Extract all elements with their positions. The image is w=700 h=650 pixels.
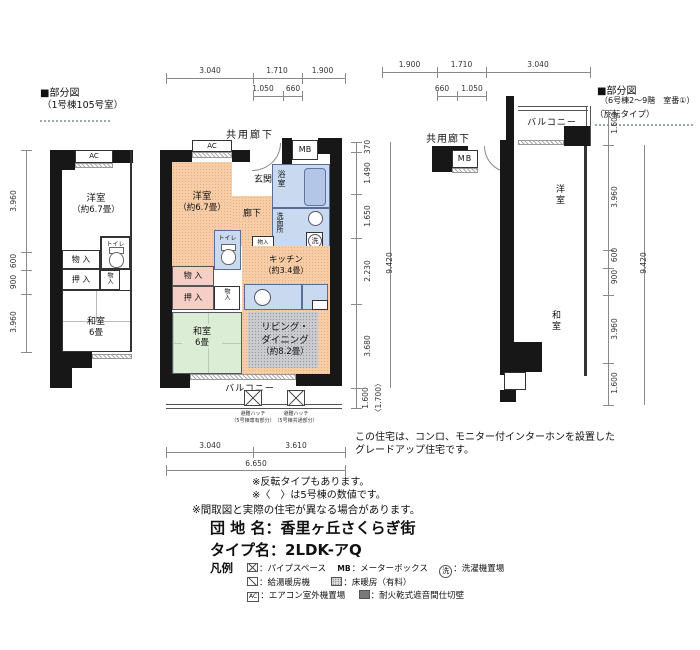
center-bath-label: 浴室 bbox=[276, 170, 287, 188]
center-monoire-label: 物 入 bbox=[172, 270, 214, 281]
center-rdim-2230: 2.230 bbox=[363, 253, 373, 289]
tick bbox=[351, 194, 362, 195]
right-dim-line bbox=[608, 110, 609, 405]
center-bottom-dim-line1 bbox=[166, 452, 346, 453]
tick bbox=[345, 447, 346, 458]
right-wall bbox=[564, 126, 590, 146]
right-outer-border bbox=[584, 146, 587, 376]
legend-washer-label: ：洗濯機置場 bbox=[453, 564, 504, 574]
left-plan-dim-line bbox=[26, 150, 27, 352]
center-living-size: （約8.2畳） bbox=[251, 345, 319, 357]
left-plan-oshiire-label: 押 入 bbox=[62, 274, 100, 285]
note-upgrade-2: グレードアップ住宅です。 bbox=[355, 441, 474, 456]
right-wall bbox=[500, 390, 516, 402]
left-dim-3: 900 bbox=[9, 264, 19, 300]
center-mono-mini1-label: 物入 bbox=[252, 238, 274, 246]
center-top-dim-3: 1.900 bbox=[295, 66, 350, 75]
hatch2-label-2: （5号棟共通部分） bbox=[265, 417, 327, 424]
mb-icon: MB bbox=[337, 564, 350, 573]
tick bbox=[253, 447, 254, 458]
center-senmen-label: 洗面所 bbox=[275, 212, 285, 233]
right-wall bbox=[500, 342, 542, 372]
right-small-box bbox=[504, 372, 526, 390]
tick bbox=[603, 405, 614, 406]
left-plan-window bbox=[92, 354, 132, 359]
center-bdim-total: 6.650 bbox=[226, 459, 286, 468]
type-value: ：2LDK-アQ bbox=[270, 541, 362, 559]
right-wall bbox=[500, 140, 514, 375]
tick bbox=[166, 73, 167, 84]
center-living-1: リビング・ bbox=[255, 319, 315, 333]
tick bbox=[603, 363, 614, 364]
left-plan-header-line2: （1号棟105号室） bbox=[42, 97, 123, 111]
right-mb-label: MB bbox=[452, 154, 478, 163]
tick bbox=[166, 465, 167, 476]
center-top-dim-line bbox=[166, 78, 346, 79]
center-washitsu-size: 6畳 bbox=[182, 336, 222, 348]
right-top-dim-1: 1.900 bbox=[382, 60, 437, 69]
right-washitsu-label: 和室 bbox=[549, 310, 562, 332]
center-rdim-total: 9.420 bbox=[385, 245, 395, 281]
legend-mb-label: ：メーターボックス bbox=[352, 564, 428, 574]
tick bbox=[21, 352, 32, 353]
note-value5: ※〈 〉は5号棟の数値です。 bbox=[252, 486, 386, 501]
legend-ac-label: ：エアコン室外機置場 bbox=[260, 591, 345, 601]
toilet-bowl bbox=[221, 249, 236, 265]
type-label: タイプ名 bbox=[210, 541, 270, 559]
center-yoshitsu-size: （約6.7畳） bbox=[164, 201, 240, 213]
tick bbox=[21, 294, 32, 295]
left-plan-wall bbox=[50, 150, 62, 368]
center-bottom-dim-line2 bbox=[166, 470, 346, 471]
legend-row-2: ：給湯暖房機 ：床暖房（有料） bbox=[247, 576, 411, 588]
center-toilet-label: トイレ bbox=[214, 233, 241, 242]
danchi-name-row: 団 地 名：香里ヶ丘さくらぎ街 bbox=[210, 517, 415, 538]
right-corridor-label: 共用廊下 bbox=[418, 130, 478, 145]
washer-icon: 洗 bbox=[439, 565, 452, 578]
left-plan-monoire-label: 物 入 bbox=[62, 254, 100, 265]
center-rdim-balcony-alt: 〈1.700〉 bbox=[373, 380, 383, 416]
right-top-dim-3: 3.040 bbox=[508, 60, 568, 69]
center-top-subdim-line bbox=[253, 96, 302, 97]
danchi-label: 団 地 名 bbox=[210, 519, 265, 537]
danchi-value: ：香里ヶ丘さくらぎ街 bbox=[265, 519, 415, 537]
toilet-bowl bbox=[109, 252, 124, 268]
note-differ: ※間取図と実際の住宅が異なる場合があります。 bbox=[192, 502, 420, 517]
legend-pipe-label: ：パイプスペース bbox=[259, 564, 326, 574]
tick bbox=[351, 142, 362, 143]
center-wall bbox=[330, 138, 342, 382]
hatch2-label-1: 避難ハッチ bbox=[269, 410, 323, 417]
center-mb-label: MB bbox=[292, 145, 318, 154]
legend-floorheat-label: ：床暖房（有料） bbox=[343, 578, 411, 588]
tick bbox=[603, 145, 614, 146]
legend-title: 凡例 bbox=[210, 560, 233, 576]
center-corridor-label: 共用廊下 bbox=[214, 126, 286, 141]
center-wall bbox=[160, 150, 172, 380]
center-rdim-1650: 1.650 bbox=[363, 198, 373, 234]
center-wall bbox=[296, 372, 342, 386]
center-bdim-2: 3.610 bbox=[266, 441, 326, 450]
left-plan-ac-label: AC bbox=[75, 152, 113, 160]
right-top-subdim-line bbox=[437, 96, 486, 97]
escape-hatch-2 bbox=[287, 390, 305, 406]
left-plan-washitsu-size: 6畳 bbox=[76, 326, 116, 338]
kitchen-small-box bbox=[312, 300, 328, 310]
left-dim-1: 3.960 bbox=[9, 183, 19, 219]
right-rdim-4: 900 bbox=[610, 259, 620, 295]
right-rdim-6: 1.600 bbox=[610, 365, 620, 401]
center-oshiire-label: 押 入 bbox=[172, 292, 214, 303]
legend-heater-label: ：給湯暖房機 bbox=[259, 578, 310, 588]
center-window bbox=[192, 152, 232, 158]
center-balcony-window bbox=[190, 374, 296, 380]
fire-partition-icon bbox=[359, 590, 370, 599]
water-heater-icon bbox=[247, 577, 258, 586]
legend-partition-label: ：耐火乾式遮音間仕切壁 bbox=[371, 591, 465, 601]
right-top-subdim-2: 1.050 bbox=[452, 84, 492, 93]
center-ac-label: AC bbox=[192, 142, 232, 150]
right-balcony-window bbox=[518, 140, 564, 145]
type-name-row: タイプ名：2LDK-アQ bbox=[210, 539, 362, 560]
center-top-subdim-2: 660 bbox=[279, 84, 307, 93]
center-yoshitsu: 洋室 bbox=[170, 188, 234, 202]
left-dim-4: 3.960 bbox=[9, 304, 19, 340]
left-plan-yoshitsu: 洋室 bbox=[66, 190, 126, 204]
right-yoshitsu-label: 洋室 bbox=[553, 184, 566, 206]
floorplan-sheet: ■部分図 （1号棟105号室） 3.960 600 900 3.960 AC 洋… bbox=[0, 0, 700, 650]
center-rouka: 廊下 bbox=[232, 206, 272, 219]
right-top-dim-2: 1.710 bbox=[434, 60, 489, 69]
right-balcony-rail bbox=[518, 106, 588, 111]
right-rdim-5: 3.960 bbox=[610, 311, 620, 347]
washbasin bbox=[308, 211, 323, 226]
floor-heating-icon bbox=[331, 577, 342, 586]
legend-row-3: AC：エアコン室外機置場 ：耐火乾式遮音間仕切壁 bbox=[247, 589, 464, 602]
center-wall bbox=[282, 138, 292, 164]
left-plan-monoire-small-label: 物入 bbox=[105, 272, 114, 284]
tick bbox=[21, 270, 32, 271]
center-top-dim-1: 3.040 bbox=[180, 66, 240, 75]
center-kitchen-size: （約3.4畳） bbox=[252, 265, 320, 276]
tick bbox=[590, 67, 591, 78]
left-plan-wall bbox=[50, 366, 72, 388]
washer-mark: 洗 bbox=[312, 237, 319, 245]
center-kitchen: キッチン bbox=[256, 253, 316, 265]
kitchen-counter-1 bbox=[244, 284, 302, 310]
center-living-2: ダイニング bbox=[255, 332, 315, 346]
tick bbox=[21, 252, 32, 253]
center-rdim-balcony: 1.600 bbox=[361, 380, 371, 416]
center-rdim-1490: 1.490 bbox=[363, 155, 373, 191]
right-wall bbox=[506, 96, 514, 144]
left-plan-window bbox=[75, 163, 113, 168]
tick bbox=[21, 150, 32, 151]
center-rdim-3680: 3.680 bbox=[363, 328, 373, 364]
left-plan-yoshitsu-size: （約6.7畳） bbox=[58, 203, 134, 215]
kitchen-sink bbox=[254, 289, 271, 306]
tick bbox=[166, 447, 167, 458]
center-top-subdim-1: 1.050 bbox=[243, 84, 283, 93]
right-rdim-total: 9.420 bbox=[639, 245, 649, 281]
left-plan-header-rule bbox=[40, 120, 110, 122]
right-rdim-1: 1.600 bbox=[610, 105, 620, 141]
tick bbox=[351, 238, 362, 239]
center-wall bbox=[232, 150, 250, 162]
bathtub bbox=[304, 168, 326, 206]
right-window bbox=[452, 168, 478, 173]
escape-hatch-1 bbox=[244, 390, 262, 406]
right-rdim-2: 3.960 bbox=[610, 179, 620, 215]
center-right-dim-line bbox=[356, 142, 357, 408]
ac-icon: AC bbox=[247, 592, 259, 602]
tick bbox=[603, 295, 614, 296]
tick bbox=[351, 152, 362, 153]
center-bdim-1: 3.040 bbox=[180, 441, 240, 450]
pipe-space-icon bbox=[247, 563, 258, 572]
center-mono-mini2-label: 物入 bbox=[222, 288, 231, 300]
tick bbox=[351, 304, 362, 305]
